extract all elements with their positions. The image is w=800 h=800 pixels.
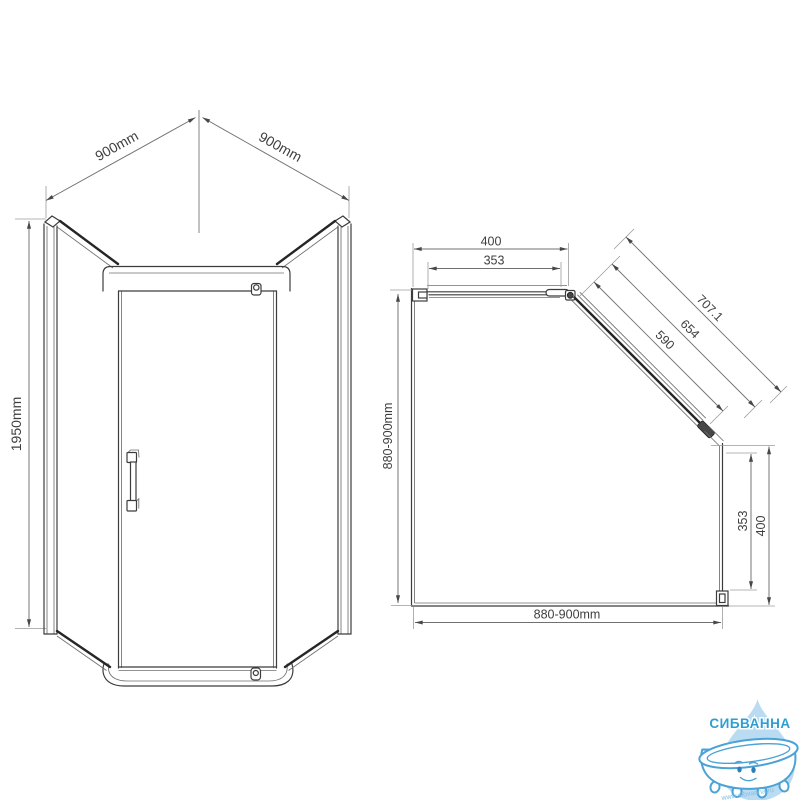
door-top-hinge xyxy=(252,284,262,296)
right-wall-profile xyxy=(335,216,351,634)
extension-line xyxy=(614,229,634,249)
brand-watermark: СИБВАННА www.sibvanna.ru xyxy=(698,699,800,800)
pivot-hinge-bottom xyxy=(697,420,724,446)
left-wall-profile xyxy=(44,216,60,634)
brand-name: СИБВАННА xyxy=(709,716,790,731)
corner-profile-bottom-right xyxy=(717,591,729,606)
front-structure xyxy=(44,216,351,686)
dim-label-width-bottom: 880-900mm xyxy=(534,608,601,622)
dim-label-654: 654 xyxy=(678,317,703,342)
bathtub-mascot-icon xyxy=(698,734,800,797)
dim-label-353-top: 353 xyxy=(484,254,505,268)
fixed-panel-right xyxy=(720,444,723,592)
front-view: 900mm 900mm 1950mm xyxy=(8,110,351,686)
dim-label-900-left: 900mm xyxy=(92,127,141,164)
extension-line xyxy=(744,400,762,418)
front-dimensions: 900mm 900mm 1950mm xyxy=(8,110,349,629)
bottom-glass-edges xyxy=(57,631,338,671)
diagonal-door xyxy=(572,292,706,426)
dim-line-654 xyxy=(612,264,755,407)
extension-line xyxy=(580,256,620,296)
dim-label-400-right: 400 xyxy=(754,516,768,537)
technical-drawing: 900mm 900mm 1950mm xyxy=(0,0,800,800)
plan-bottom-wall xyxy=(412,603,729,606)
dim-label-depth-left: 880-900mm xyxy=(381,403,395,470)
dim-line-707 xyxy=(626,237,781,392)
plan-dimensions: 400 353 707.1 654 590 353 400 xyxy=(381,229,787,629)
header-rail xyxy=(103,267,290,292)
dim-label-590: 590 xyxy=(653,328,678,353)
dim-label-900-right: 900mm xyxy=(256,128,305,165)
door-panel xyxy=(119,291,277,671)
door-bottom-roller xyxy=(251,668,261,680)
pivot-hinge-top xyxy=(546,290,575,301)
dim-line-900-right xyxy=(203,118,350,201)
extension-line xyxy=(770,386,787,403)
dim-label-707: 707.1 xyxy=(694,292,726,324)
dim-line-900-left xyxy=(46,118,196,201)
wall-cap xyxy=(45,216,60,227)
dim-label-400-top: 400 xyxy=(481,235,502,249)
drawing-sheet: 900mm 900mm 1950mm xyxy=(0,0,800,800)
extension-line xyxy=(710,406,728,424)
plan-view: 400 353 707.1 654 590 353 400 xyxy=(381,229,787,629)
top-glass-edges xyxy=(57,221,339,268)
wall-cap xyxy=(335,216,350,227)
plan-left-wall xyxy=(412,289,415,607)
dim-label-height: 1950mm xyxy=(8,397,24,451)
door-handle xyxy=(127,450,139,511)
corner-profile-top-left xyxy=(413,289,428,301)
dim-label-353-right: 353 xyxy=(736,511,750,532)
